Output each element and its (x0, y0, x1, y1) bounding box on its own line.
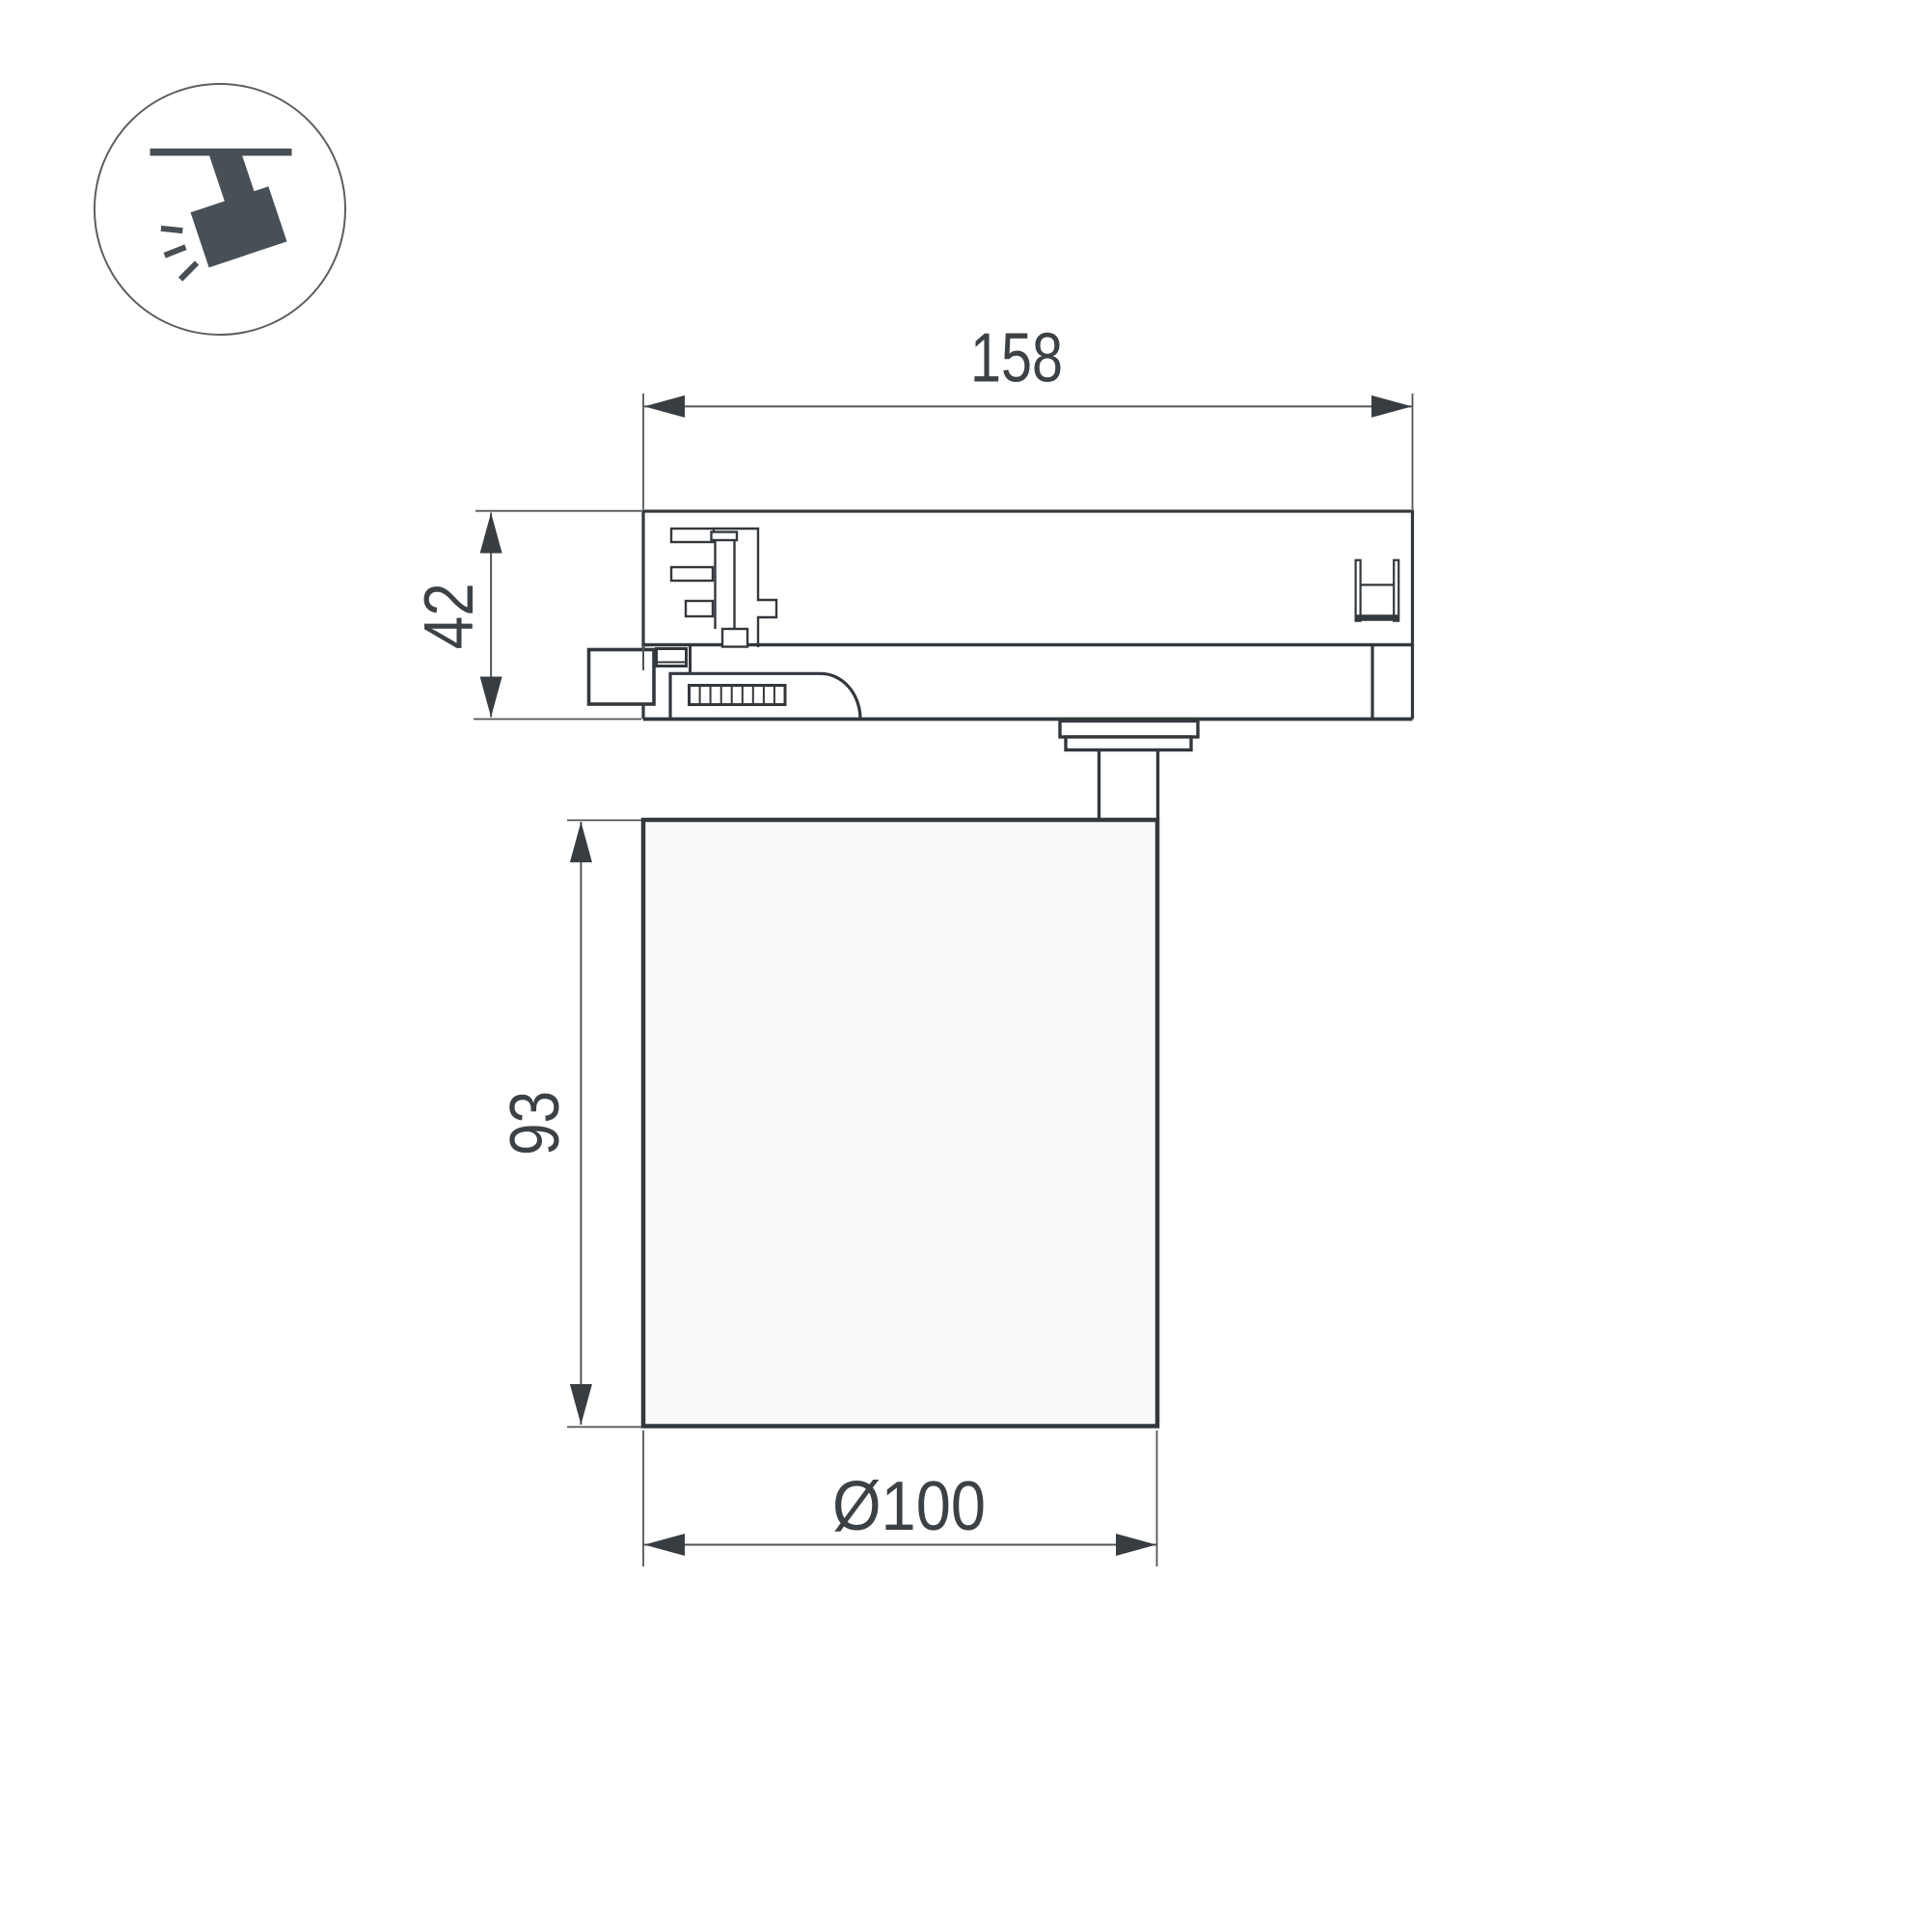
svg-text:158: 158 (970, 320, 1063, 397)
svg-text:93: 93 (497, 1091, 574, 1156)
svg-text:42: 42 (411, 583, 488, 649)
svg-text:Ø100: Ø100 (832, 1468, 986, 1545)
